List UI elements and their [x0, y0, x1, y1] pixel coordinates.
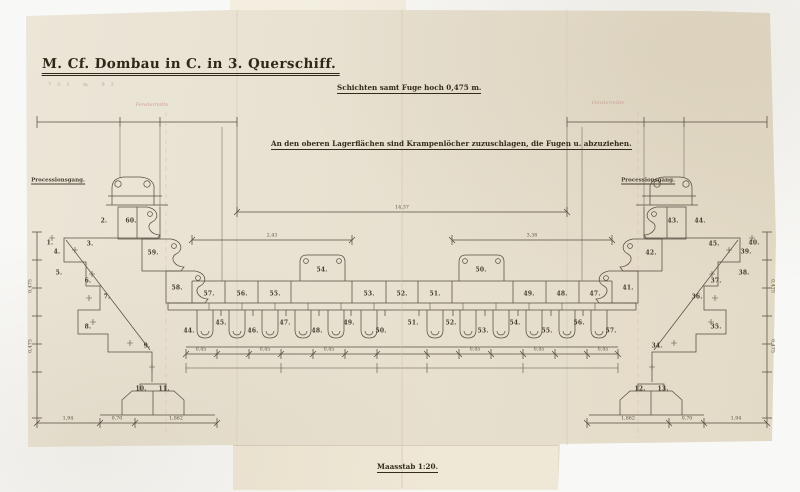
stone-number: 50.: [375, 328, 386, 335]
stone-number: 56.: [236, 291, 247, 298]
stone-number: 1.: [47, 240, 54, 247]
stone-number: 56.: [573, 320, 584, 327]
stone-number: 44.: [694, 218, 705, 225]
annotation-layer: M. Cf. Dombau in C. in 3. Querschiff. 73…: [0, 0, 800, 492]
stone-number: 42.: [645, 250, 656, 257]
dimension-label: 1,862: [169, 417, 183, 422]
stone-number: 53.: [363, 291, 374, 298]
stone-number: 8.: [85, 324, 92, 331]
pencil-note: 731 m 92: [48, 82, 120, 88]
stone-number: 45.: [708, 241, 719, 248]
stone-number: 49.: [523, 291, 534, 298]
dimension-label: 0,475: [770, 279, 775, 293]
stone-number: 35.: [710, 324, 721, 331]
stone-number: 52.: [396, 291, 407, 298]
scanned-drawing-page: M. Cf. Dombau in C. in 3. Querschiff. 73…: [0, 0, 800, 492]
stone-number: 2.: [101, 218, 108, 225]
gallery-label-right: Processionsgang.: [621, 178, 675, 185]
dimension-label: 1,94: [63, 417, 74, 422]
dimension-label: 0,475: [29, 339, 34, 353]
dimension-label: 3,38: [527, 234, 538, 239]
stone-number: 45.: [215, 320, 226, 327]
stone-number: 9.: [144, 343, 151, 350]
stone-number: 3.: [87, 241, 94, 248]
stone-number: 37.: [710, 278, 721, 285]
stone-number: 59.: [147, 250, 158, 257]
dimension-label: 1,862: [621, 417, 635, 422]
gallery-label-left: Processionsgang.: [31, 178, 85, 185]
dimension-label: 0,45: [470, 348, 481, 353]
dimension-label: 0,45: [260, 348, 271, 353]
stone-number: 36.: [691, 294, 702, 301]
stone-number: 55.: [541, 328, 552, 335]
stone-number: 10.: [135, 386, 146, 393]
stone-number: 54.: [509, 320, 520, 327]
stone-number: 7.: [104, 294, 111, 301]
stone-number: 46.: [247, 328, 258, 335]
scale-note: Maasstab 1:20.: [377, 462, 438, 473]
stone-number: 34.: [651, 343, 662, 350]
stone-number: 57.: [605, 328, 616, 335]
stone-number: 49.: [343, 320, 354, 327]
stone-number: 57.: [203, 291, 214, 298]
stone-number: 54.: [316, 267, 327, 274]
stone-number: 12.: [634, 386, 645, 393]
stone-number: 60.: [125, 218, 136, 225]
dimension-label: 0,475: [770, 339, 775, 353]
stone-number: 51.: [429, 291, 440, 298]
axis-label: Fenstermitte: [592, 100, 625, 106]
stone-number: 47.: [589, 291, 600, 298]
stone-number: 48.: [311, 328, 322, 335]
stone-number: 44.: [183, 328, 194, 335]
annotation-course-height: Schichten samt Fuge hoch 0,475 m.: [337, 83, 481, 94]
stone-number: 41.: [622, 285, 633, 292]
stone-number: 5.: [56, 270, 63, 277]
stone-number: 13.: [657, 386, 668, 393]
stone-number: 53.: [477, 328, 488, 335]
annotation-bed-surfaces: An den oberen Lagerflächen sind Krampenl…: [271, 139, 632, 150]
dimension-label: 0,70: [112, 417, 123, 422]
dimension-label: 0,475: [29, 279, 34, 293]
axis-label: Fenstermitte: [136, 102, 169, 108]
stone-number: 52.: [445, 320, 456, 327]
stone-number: 4.: [54, 249, 61, 256]
stone-number: 38.: [738, 270, 749, 277]
dimension-label: 0,45: [324, 348, 335, 353]
drawing-title: M. Cf. Dombau in C. in 3. Querschiff.: [42, 56, 341, 76]
stone-number: 11.: [158, 386, 169, 393]
dimension-label: 0,45: [196, 348, 207, 353]
dimension-label: 0,70: [682, 417, 693, 422]
dimension-label: 2,43: [267, 234, 278, 239]
stone-number: 43.: [667, 218, 678, 225]
dimension-label: 0,45: [534, 348, 545, 353]
dimension-label: 0,45: [598, 348, 609, 353]
dimension-label: 1,94: [731, 417, 742, 422]
stone-number: 47.: [279, 320, 290, 327]
stone-number: 39.: [740, 249, 751, 256]
stone-number: 55.: [269, 291, 280, 298]
stone-number: 50.: [475, 267, 486, 274]
stone-number: 48.: [556, 291, 567, 298]
stone-number: 40.: [748, 240, 759, 247]
stone-number: 6.: [85, 278, 92, 285]
stone-number: 58.: [171, 285, 182, 292]
stone-number: 51.: [407, 320, 418, 327]
dimension-label: 14,37: [395, 206, 409, 211]
